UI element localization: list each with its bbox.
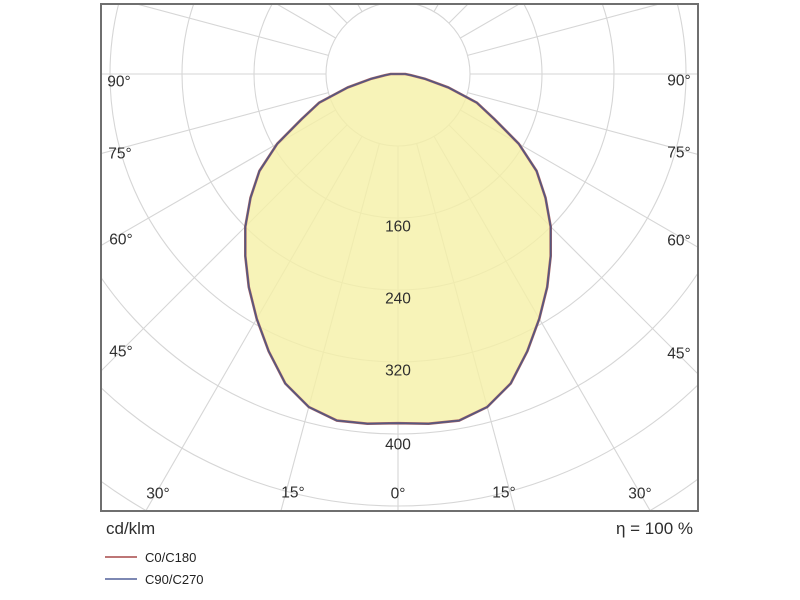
legend: C0/C180 C90/C270: [105, 546, 204, 590]
gamma-angle-label: 75°: [108, 146, 131, 162]
gamma-angle-label: 75°: [667, 145, 690, 161]
legend-item-c90-c270: C90/C270: [105, 568, 204, 590]
c0-c180-curve-swatch: [105, 556, 137, 558]
intensity-ring-label: 400: [385, 437, 411, 453]
legend-label-c0-c180: C0/C180: [145, 551, 196, 564]
legend-item-c0-c180: C0/C180: [105, 546, 204, 568]
gamma-angle-label: 30°: [146, 486, 169, 502]
gamma-angle-label: 0°: [391, 486, 406, 502]
legend-label-c90-c270: C90/C270: [145, 573, 204, 586]
gamma-angle-label: 45°: [667, 346, 690, 362]
gamma-angle-label: 30°: [628, 486, 651, 502]
gamma-angle-label: 15°: [492, 485, 515, 501]
gamma-angle-label: 45°: [109, 344, 132, 360]
intensity-ring-label: 160: [385, 219, 411, 235]
gamma-angle-label: 90°: [667, 73, 690, 89]
photometric-polar-diagram: 90°75°60°45°30°15°0°15°30°45°60°75°90°16…: [0, 0, 800, 600]
unit-label: cd/klm: [106, 519, 155, 539]
gamma-angle-label: 90°: [107, 74, 130, 90]
light-output-ratio-label: η = 100 %: [616, 519, 693, 539]
gamma-angle-label: 60°: [109, 232, 132, 248]
intensity-ring-label: 240: [385, 291, 411, 307]
gamma-angle-label: 15°: [281, 485, 304, 501]
c90-c270-curve-swatch: [105, 578, 137, 580]
gamma-angle-label: 60°: [667, 233, 690, 249]
intensity-ring-label: 320: [385, 363, 411, 379]
